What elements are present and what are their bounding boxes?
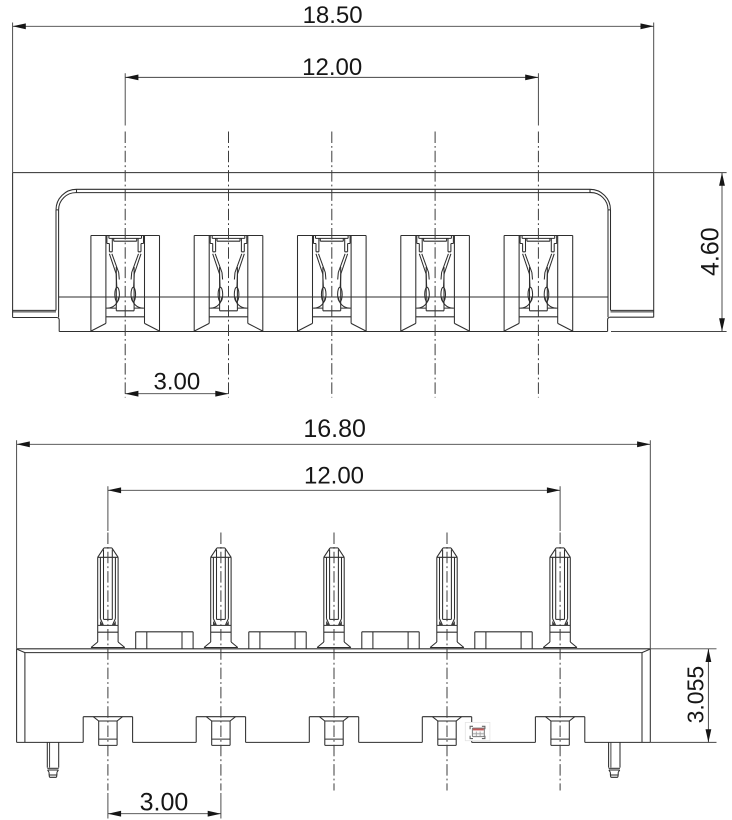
svg-text:3.00: 3.00 [154,369,201,396]
svg-text:3.00: 3.00 [140,789,189,817]
svg-text:16.80: 16.80 [303,415,366,443]
svg-text:4.60: 4.60 [696,227,724,276]
svg-text:12.00: 12.00 [302,54,362,81]
svg-text:18.50: 18.50 [303,2,363,29]
svg-text:3.055: 3.055 [683,666,709,724]
svg-text:12.00: 12.00 [304,463,364,490]
